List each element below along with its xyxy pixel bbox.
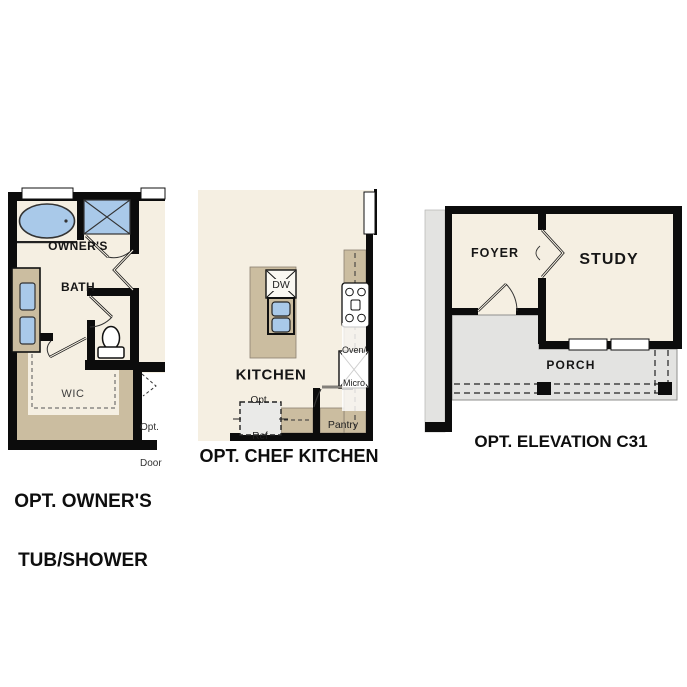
island-sink (268, 298, 294, 334)
pantry-label: Pantry (328, 419, 358, 431)
floorplan-sheet: OWNER'S BATH WIC Opt. Door OPT. OWNER'S … (0, 0, 687, 687)
chef-kitchen-caption: OPT. CHEF KITCHEN (199, 446, 378, 467)
vanity (12, 268, 40, 352)
elevation-caption: OPT. ELEVATION C31 (474, 432, 647, 452)
wic-label: WIC (61, 388, 84, 400)
bath-window (22, 188, 73, 199)
dishwasher-label: DW (271, 279, 291, 291)
owners-tub-shower-caption: OPT. OWNER'S TUB/SHOWER (14, 453, 152, 609)
side-wall-strip (425, 210, 445, 432)
oven-micro-label: Oven/ Micro (342, 323, 366, 411)
study-window-2 (611, 339, 649, 350)
study-label: STUDY (579, 251, 638, 269)
cooktop (342, 283, 369, 327)
foyer-label: FOYER (471, 246, 519, 260)
hall-window (141, 188, 165, 199)
kitchen-label: KITCHEN (236, 367, 307, 384)
owners-bath-label: OWNER'S BATH (48, 213, 108, 321)
porch-post-2 (658, 382, 672, 395)
porch-post-1 (537, 382, 551, 395)
kitchen-window (364, 192, 375, 234)
elevation-plan (425, 206, 682, 432)
study-window-1 (569, 339, 607, 350)
porch-label: PORCH (546, 358, 595, 372)
